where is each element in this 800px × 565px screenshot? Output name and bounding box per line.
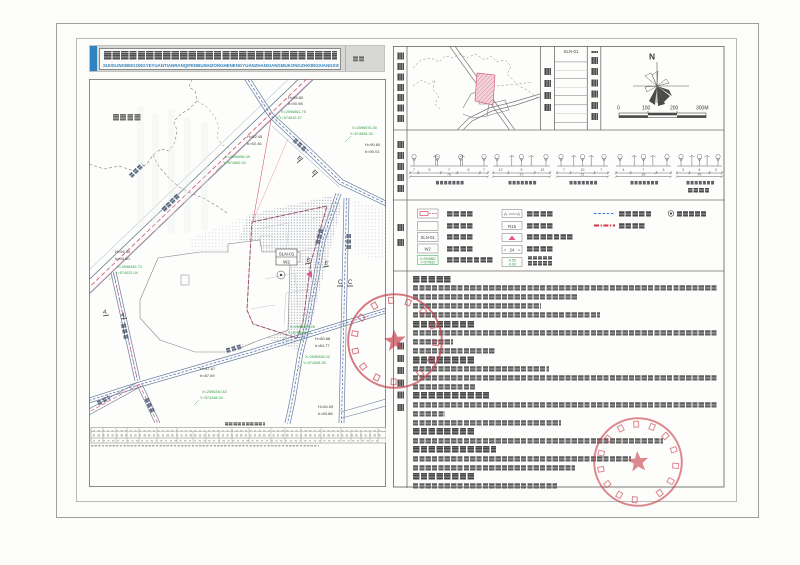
- svg-text:h=90.01: h=90.01: [365, 149, 380, 154]
- svg-text:C: C: [348, 280, 353, 286]
- svg-text:H=94.60: H=94.60: [115, 249, 131, 254]
- svg-text:Y=574022.04: Y=574022.04: [115, 271, 138, 275]
- svg-text:h=84.77: h=84.77: [315, 343, 330, 348]
- svg-text:Y=574632.57: Y=574632.57: [279, 116, 302, 120]
- svg-text:12: 12: [499, 168, 503, 172]
- svg-text:0: 0: [617, 106, 620, 112]
- svg-text:h=92.46: h=92.46: [247, 141, 262, 146]
- svg-text:5: 5: [429, 168, 431, 172]
- svg-text:7: 7: [483, 168, 485, 172]
- svg-text:200: 200: [670, 106, 679, 112]
- svg-text:W2: W2: [425, 247, 432, 252]
- svg-text:78: 78: [447, 173, 451, 177]
- svg-text:X=2596408.02: X=2596408.02: [305, 355, 330, 359]
- svg-text:H=90.60: H=90.60: [365, 142, 381, 147]
- svg-text:3: 3: [715, 168, 717, 172]
- svg-text:3: 3: [682, 168, 684, 172]
- svg-text:7: 7: [600, 168, 602, 172]
- svg-text:9: 9: [521, 168, 523, 172]
- svg-text:7: 7: [563, 168, 565, 172]
- svg-text:X=2596698.49: X=2596698.49: [225, 155, 250, 159]
- svg-text:X=2596489.28: X=2596489.28: [290, 325, 315, 329]
- svg-text:C: C: [338, 280, 343, 286]
- svg-text:X=2596861.75: X=2596861.75: [281, 110, 306, 114]
- svg-text:45: 45: [698, 173, 702, 177]
- svg-text:SLN-01: SLN-01: [564, 49, 579, 54]
- svg-text:X=2596445.72: X=2596445.72: [117, 265, 142, 269]
- svg-text:R15: R15: [508, 224, 517, 229]
- svg-text:10: 10: [581, 168, 585, 172]
- svg-text:4: 4: [663, 168, 665, 172]
- svg-text:X=2596876.30: X=2596876.30: [352, 126, 377, 130]
- svg-text:h=83.86: h=83.86: [318, 411, 333, 416]
- svg-text:Y=574248.04: Y=574248.04: [200, 396, 223, 400]
- svg-text:51: 51: [581, 173, 585, 177]
- svg-text:300M: 300M: [696, 106, 709, 112]
- svg-text:h=94.60: h=94.60: [115, 256, 130, 261]
- svg-text:H=80.68: H=80.68: [315, 336, 331, 341]
- svg-text:H=94.60: H=94.60: [288, 95, 304, 100]
- svg-text:N: N: [649, 52, 655, 62]
- svg-text:5: 5: [468, 168, 470, 172]
- svg-text:6: 6: [699, 168, 701, 172]
- svg-text:h=90.98: h=90.98: [288, 101, 303, 106]
- svg-text:7: 7: [413, 168, 415, 172]
- svg-text:24: 24: [510, 248, 515, 253]
- svg-text:Y=574682.54: Y=574682.54: [223, 161, 246, 165]
- svg-text:H=87.67: H=87.67: [200, 366, 216, 371]
- svg-text:h=87.69: h=87.69: [200, 373, 215, 378]
- svg-text:H=92.45: H=92.45: [247, 134, 263, 139]
- svg-text:100: 100: [642, 106, 651, 112]
- svg-text:Y=574564.62: Y=574564.62: [288, 331, 311, 335]
- svg-text:X=2596240.62: X=2596240.62: [202, 390, 227, 394]
- svg-text:W2: W2: [283, 260, 290, 265]
- svg-text:7: 7: [643, 168, 645, 172]
- svg-text:55: 55: [642, 173, 646, 177]
- svg-text:Y=574694.30: Y=574694.30: [350, 132, 373, 136]
- svg-text:7: 7: [448, 168, 450, 172]
- svg-text:-9.60: -9.60: [508, 263, 516, 267]
- svg-text:Y=574632: Y=574632: [420, 260, 435, 264]
- svg-text:SLN-01: SLN-01: [421, 235, 436, 240]
- svg-text:H=84.09: H=84.09: [318, 404, 334, 409]
- svg-text:Y=574408.36: Y=574408.36: [303, 361, 326, 365]
- svg-text:SLN-01: SLN-01: [279, 251, 295, 256]
- svg-text:12: 12: [541, 168, 545, 172]
- svg-text:4: 4: [622, 168, 624, 172]
- svg-text:57: 57: [520, 173, 524, 177]
